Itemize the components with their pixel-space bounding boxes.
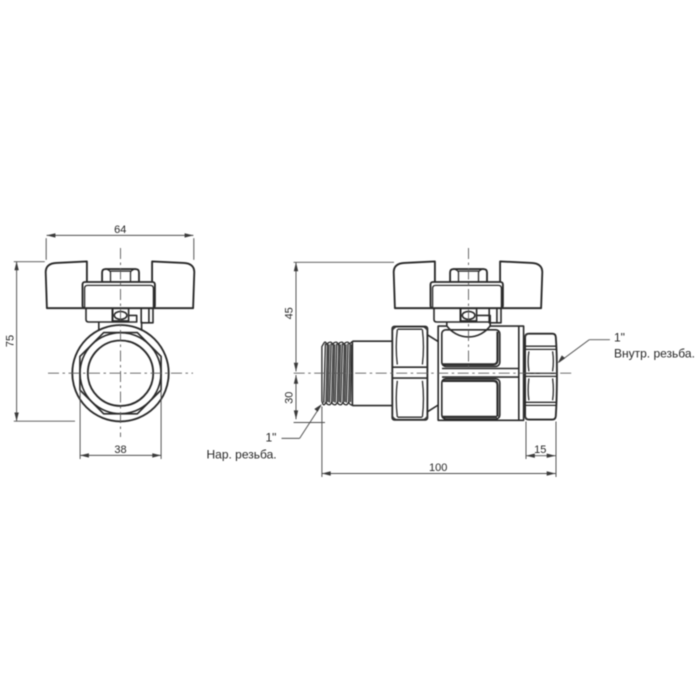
svg-text:100: 100 [429, 462, 447, 474]
svg-text:38: 38 [114, 444, 126, 456]
svg-text:1": 1" [614, 331, 625, 345]
svg-text:15: 15 [534, 444, 546, 456]
svg-text:30: 30 [284, 392, 296, 404]
svg-text:Нар. резьба.: Нар. резьба. [207, 448, 277, 462]
svg-text:64: 64 [114, 224, 126, 236]
svg-text:45: 45 [284, 307, 296, 319]
svg-text:75: 75 [4, 335, 16, 347]
svg-text:Внутр. резьба.: Внутр. резьба. [614, 347, 695, 361]
svg-text:1": 1" [266, 431, 277, 445]
